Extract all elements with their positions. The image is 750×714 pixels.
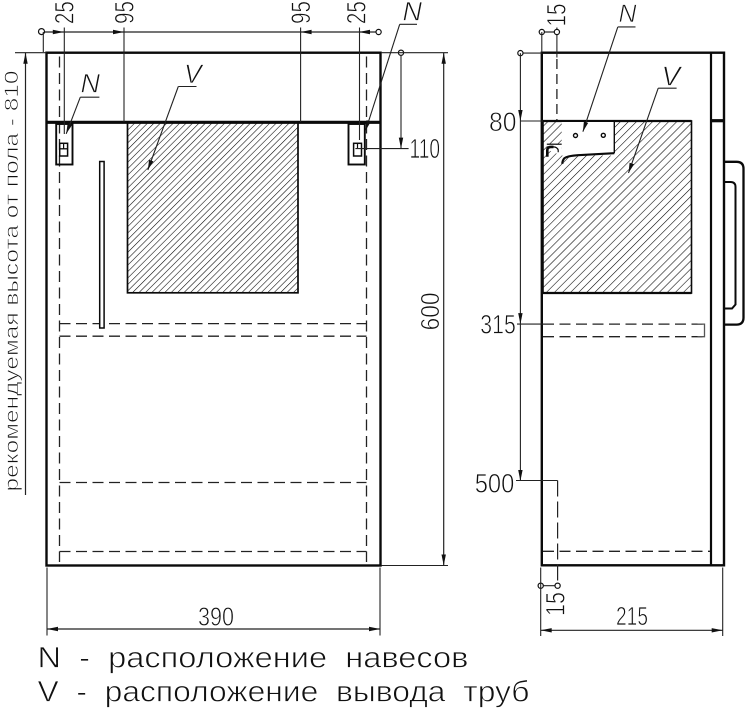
svg-text:15: 15 [541,592,571,616]
svg-text:315: 315 [480,310,516,340]
svg-text:215: 215 [616,601,648,631]
svg-text:15: 15 [542,4,572,27]
svg-text:600: 600 [415,292,445,330]
svg-text:N - расположение навесов: N - расположение навесов [38,642,469,675]
svg-text:500: 500 [475,469,515,499]
svg-text:N: N [619,0,638,28]
svg-text:25: 25 [341,1,371,24]
svg-text:N: N [403,0,423,27]
svg-text:80: 80 [489,107,517,137]
svg-text:95: 95 [110,1,140,24]
svg-text:V: V [662,61,683,92]
svg-text:N: N [81,69,101,99]
svg-text:110: 110 [410,133,441,164]
svg-text:V - расположение вывода тр: V - расположение вывода труб [38,676,530,709]
svg-text:390: 390 [198,602,234,632]
svg-text:V: V [184,59,204,89]
svg-text:25: 25 [49,1,79,24]
svg-text:95: 95 [286,1,316,24]
svg-text:рекомендуемая высота от пола -: рекомендуемая высота от пола - 810 [1,70,23,491]
